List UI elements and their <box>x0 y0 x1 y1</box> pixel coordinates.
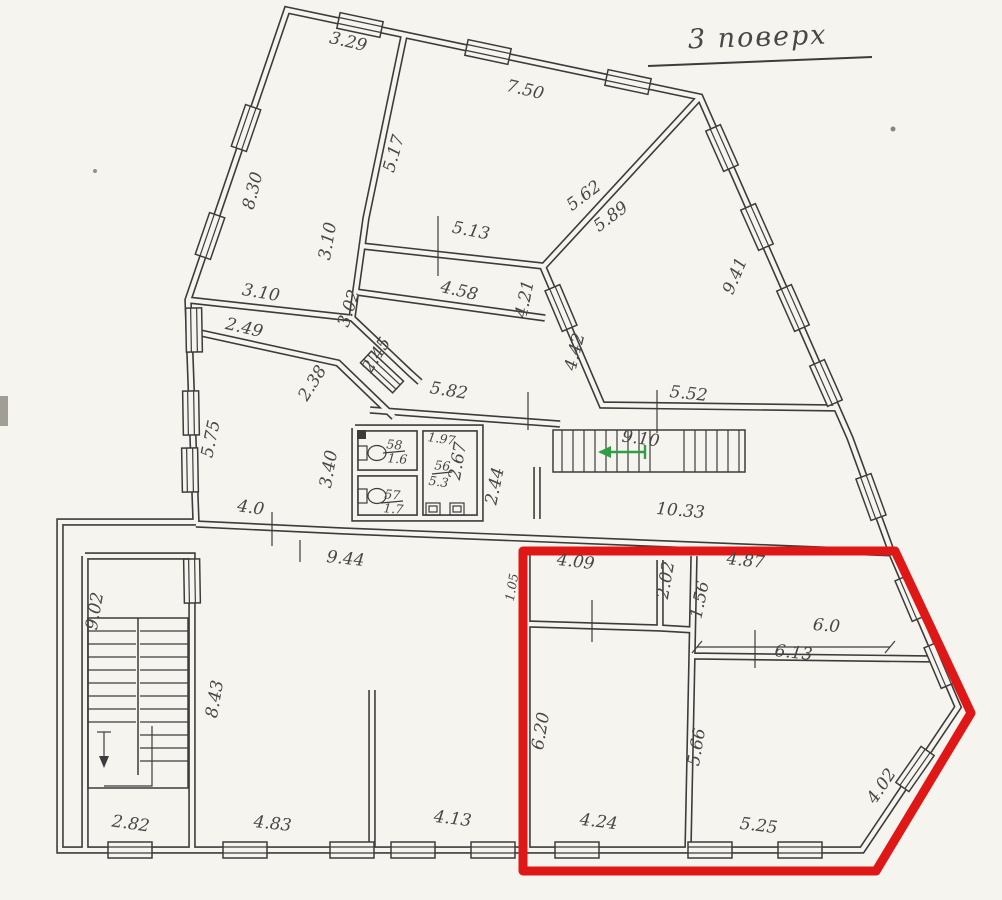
title-underline <box>648 57 872 66</box>
dim-label: 4.13 <box>432 807 473 832</box>
floor-plan-page: 3 поверх 3.29 7.50 8.30 5.17 3.10 3.10 2… <box>0 0 1002 900</box>
staircase-bottom-left <box>88 618 188 788</box>
dim-label: 3.10 <box>315 221 341 262</box>
dim-label: 10.33 <box>655 499 705 523</box>
wall-corner-detail <box>357 430 366 439</box>
sink-icon <box>426 503 440 515</box>
dim-label: 5.13 <box>450 218 491 245</box>
dim-label: 6.0 <box>812 615 841 637</box>
room-area-label: 5.3 <box>428 473 450 491</box>
scan-speck <box>93 169 97 173</box>
dim-label: 9.44 <box>326 547 366 571</box>
dim-label: 5.82 <box>429 378 470 404</box>
dim-label: 6.20 <box>528 711 554 752</box>
dim-label: 2.38 <box>294 362 332 406</box>
dim-label: 8.30 <box>239 170 268 212</box>
scan-artifact <box>0 396 8 426</box>
room-area-label: 1.7 <box>383 500 404 517</box>
dim-label: 3.40 <box>316 449 342 490</box>
dim-label: 5.52 <box>669 382 709 406</box>
floor-title: 3 поверх <box>687 20 828 56</box>
sink-icon <box>450 503 464 515</box>
dim-label: 3.10 <box>240 280 281 306</box>
dim-label: 8.43 <box>202 679 228 720</box>
room-number-label: 56 <box>434 457 451 473</box>
dim-label: 4.24 <box>578 810 619 835</box>
dim-label: 4.87 <box>725 549 766 573</box>
dimension-labels: 3.29 7.50 8.30 5.17 3.10 3.10 2.49 3.02 … <box>82 28 901 838</box>
dim-label: 5.89 <box>590 198 632 237</box>
stairs-direction-arrow-icon <box>97 732 111 768</box>
dim-label: 9.10 <box>621 427 661 452</box>
dim-label: 2.82 <box>110 811 151 836</box>
dim-label: 4.83 <box>252 812 293 836</box>
floor-plan-drawing: 3 поверх 3.29 7.50 8.30 5.17 3.10 3.10 2… <box>0 0 1002 900</box>
toilet-icon <box>358 446 386 461</box>
dim-label: 4.0 <box>235 496 266 520</box>
toilet-icon <box>358 489 386 504</box>
dim-label: 2.44 <box>481 465 509 507</box>
dim-label: 5.25 <box>739 814 779 838</box>
dim-label: 7.50 <box>504 76 546 104</box>
dim-label: 6.13 <box>774 641 814 665</box>
room-area-label: 1.6 <box>387 450 408 467</box>
dim-label: 9.41 <box>719 255 752 298</box>
dim-label: 5.75 <box>197 418 224 459</box>
dim-label: 4.09 <box>555 550 596 575</box>
dim-label: 1.05 <box>502 572 522 602</box>
scan-speck <box>891 127 896 132</box>
